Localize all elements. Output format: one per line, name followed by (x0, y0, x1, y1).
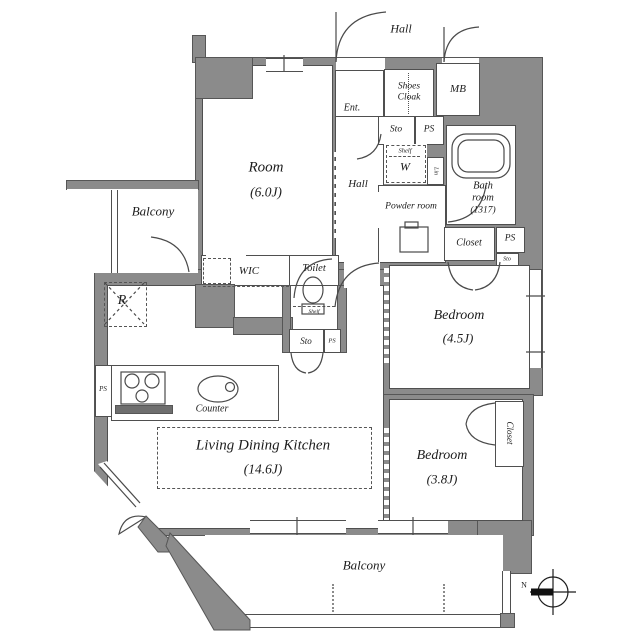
label-balcony-west: Balcony (132, 205, 175, 220)
wic-shelf-box (203, 258, 231, 284)
label-entry-ps: PS (424, 125, 435, 136)
sliding-door-bedroom2 (384, 428, 389, 520)
label-counter: Counter (196, 403, 229, 414)
label-bedroom2-closet: Closet (505, 421, 515, 444)
floor-plan: Hall Shoes Cloak MB Ent. Sto PS Shelf W … (0, 0, 640, 640)
balcony-west-railing (111, 190, 118, 273)
opening-entrance (336, 58, 385, 71)
label-compass-north: N (521, 582, 527, 591)
balcony-south-rail-right (502, 571, 511, 616)
door-arc-meter-box (444, 27, 479, 62)
label-toilet-sto: Sto (300, 336, 312, 346)
opening-hall-ldk (344, 262, 380, 288)
label-bathroom-size: (1317) (470, 206, 495, 217)
compass (530, 569, 576, 615)
wall-balcony-west-top (67, 181, 198, 189)
balcony-south-rail (216, 614, 508, 628)
label-meter-box: MB (450, 83, 466, 95)
toilet-shelf-line (293, 306, 335, 307)
label-ldk: Living Dining Kitchen (196, 438, 330, 455)
label-linen: Lin (432, 167, 439, 175)
label-room-size: (6.0J) (250, 184, 282, 199)
label-wic: WIC (239, 265, 259, 277)
kitchen-half-wall (116, 406, 172, 413)
balcony-west-floor (67, 189, 198, 273)
label-room: Room (249, 160, 284, 177)
wall-toilet-left (283, 286, 290, 352)
label-refrigerator: R (118, 293, 127, 309)
window-bedroom2-south (378, 520, 448, 534)
label-hall-sto: Sto (503, 257, 511, 264)
label-laundry-shelf: Shelf (399, 147, 412, 154)
label-bedroom1-size: (4.5J) (443, 332, 474, 347)
door-arc-entrance (336, 12, 386, 62)
label-toilet: Toilet (302, 263, 326, 275)
laundry-shelf-line (389, 156, 420, 157)
label-hall-closet: Closet (456, 237, 482, 248)
label-inner-hall: Hall (348, 178, 368, 190)
window-room-top (266, 58, 303, 72)
label-washer: W (400, 160, 410, 173)
wall-wic-corner-block (196, 285, 234, 327)
label-bedroom1: Bedroom (434, 308, 485, 324)
label-ldk-size: (14.6J) (244, 461, 283, 476)
balcony-south-floor (205, 535, 503, 615)
wall-room-notch (196, 58, 252, 98)
label-bedroom2: Bedroom (417, 448, 468, 464)
window-bedroom1-east (529, 270, 542, 368)
label-powder-room: Powder room (385, 202, 437, 213)
sliding-door-bedroom1 (384, 268, 389, 366)
window-ldk-south (250, 520, 346, 534)
room-powder (379, 186, 445, 262)
label-bathroom: Bath room (462, 180, 504, 204)
compass-north-pointer (531, 589, 553, 596)
compass-circle (538, 577, 568, 607)
ldk-boundary (157, 427, 372, 489)
label-common-hall: Hall (390, 22, 411, 35)
wall-balcony-corner-block (501, 614, 514, 627)
label-toilet-ps: PS (328, 337, 335, 344)
opening-powder (378, 192, 385, 228)
room-bedroom1 (390, 266, 529, 388)
balcony-partition-1 (332, 584, 334, 612)
label-balcony-south: Balcony (343, 559, 386, 574)
sliding-door-room-hall (334, 152, 339, 242)
label-entry-sto: Sto (390, 125, 402, 136)
label-kitchen-ps: PS (99, 386, 107, 394)
wic-hanger-line (203, 286, 289, 287)
label-toilet-shelf: Shelf (309, 309, 320, 315)
balcony-partition-2 (443, 584, 445, 612)
label-entrance: Ent. (344, 102, 360, 113)
label-bedroom2-size: (3.8J) (427, 473, 458, 488)
label-hall-ps: PS (505, 234, 516, 245)
label-shoes-cloak: Shoes Cloak (387, 81, 431, 102)
